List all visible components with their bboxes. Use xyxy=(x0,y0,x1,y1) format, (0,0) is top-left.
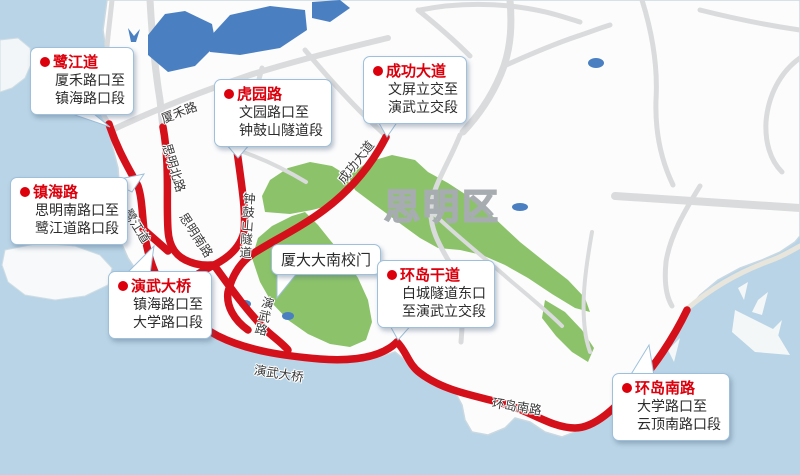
callout-body-line: 文屏立交至 xyxy=(388,81,458,99)
callout-title-text: 成功大道 xyxy=(386,62,446,81)
pond-4 xyxy=(282,312,294,320)
pond-2 xyxy=(512,203,528,211)
callout-title: 虎园路 xyxy=(224,85,323,104)
bullet-icon xyxy=(118,281,128,291)
callout-zhenhailu: 镇海路 思明南路口至 鹭江道路口段 xyxy=(10,177,128,245)
callout-huandaonanlu: 环岛南路 大学路口至 云顶南路口段 xyxy=(612,373,730,441)
callout-body-line: 鹭江道路口段 xyxy=(35,220,119,238)
callout-title-text: 镇海路 xyxy=(33,183,78,202)
bullet-icon xyxy=(373,66,383,76)
callout-lujiangdao: 鹭江道 厦禾路口至 镇海路口段 xyxy=(30,47,134,115)
callout-body-line: 演武立交段 xyxy=(388,99,458,117)
callout-title: 成功大道 xyxy=(373,62,458,81)
callout-title-text: 鹭江道 xyxy=(53,53,98,72)
bullet-icon xyxy=(622,383,632,393)
poi-label-xiada: 厦大大南校门 xyxy=(271,244,381,275)
bullet-icon xyxy=(20,187,30,197)
callout-title: 演武大桥 xyxy=(118,277,203,296)
district-label: 思明区 xyxy=(384,178,501,230)
callout-title-text: 演武大桥 xyxy=(131,277,191,296)
callout-body-line: 至演武立交段 xyxy=(402,303,486,321)
callout-title-text: 虎园路 xyxy=(237,85,282,104)
callout-body-line: 思明南路口至 xyxy=(35,202,119,220)
callout-body-line: 镇海路口至 xyxy=(133,296,203,314)
callout-body-line: 镇海路口段 xyxy=(55,90,125,108)
traffic-map: 思明区 厦禾路 思明北路 鹭江道 思明南路 钟鼓山隧道 成功大道 演武路 演武大… xyxy=(0,0,800,475)
callout-body-line: 钟鼓山隧道段 xyxy=(239,122,323,140)
bullet-icon xyxy=(387,270,397,280)
pond-1 xyxy=(588,58,604,68)
callout-huandaogandao: 环岛干道 白城隧道东口 至演武立交段 xyxy=(377,260,495,328)
callout-body-line: 厦禾路口至 xyxy=(55,72,125,90)
bullet-icon xyxy=(40,57,50,67)
callout-title: 鹭江道 xyxy=(40,53,125,72)
callout-body-line: 文园路口至 xyxy=(239,104,323,122)
bullet-icon xyxy=(224,89,234,99)
callout-yanwudaqiao: 演武大桥 镇海路口至 大学路口段 xyxy=(108,271,212,339)
callout-huyuanlu: 虎园路 文园路口至 钟鼓山隧道段 xyxy=(214,79,332,147)
callout-title-text: 环岛干道 xyxy=(400,266,460,285)
callout-title-text: 环岛南路 xyxy=(635,379,695,398)
callout-body-line: 大学路口至 xyxy=(637,398,721,416)
callout-body-line: 白城隧道东口 xyxy=(402,285,486,303)
callout-chenggongdadao: 成功大道 文屏立交至 演武立交段 xyxy=(363,56,467,124)
callout-body-line: 大学路口段 xyxy=(133,314,203,332)
callout-body-line: 云顶南路口段 xyxy=(637,416,721,434)
callout-title: 环岛干道 xyxy=(387,266,486,285)
callout-title: 环岛南路 xyxy=(622,379,721,398)
callout-title: 镇海路 xyxy=(20,183,119,202)
